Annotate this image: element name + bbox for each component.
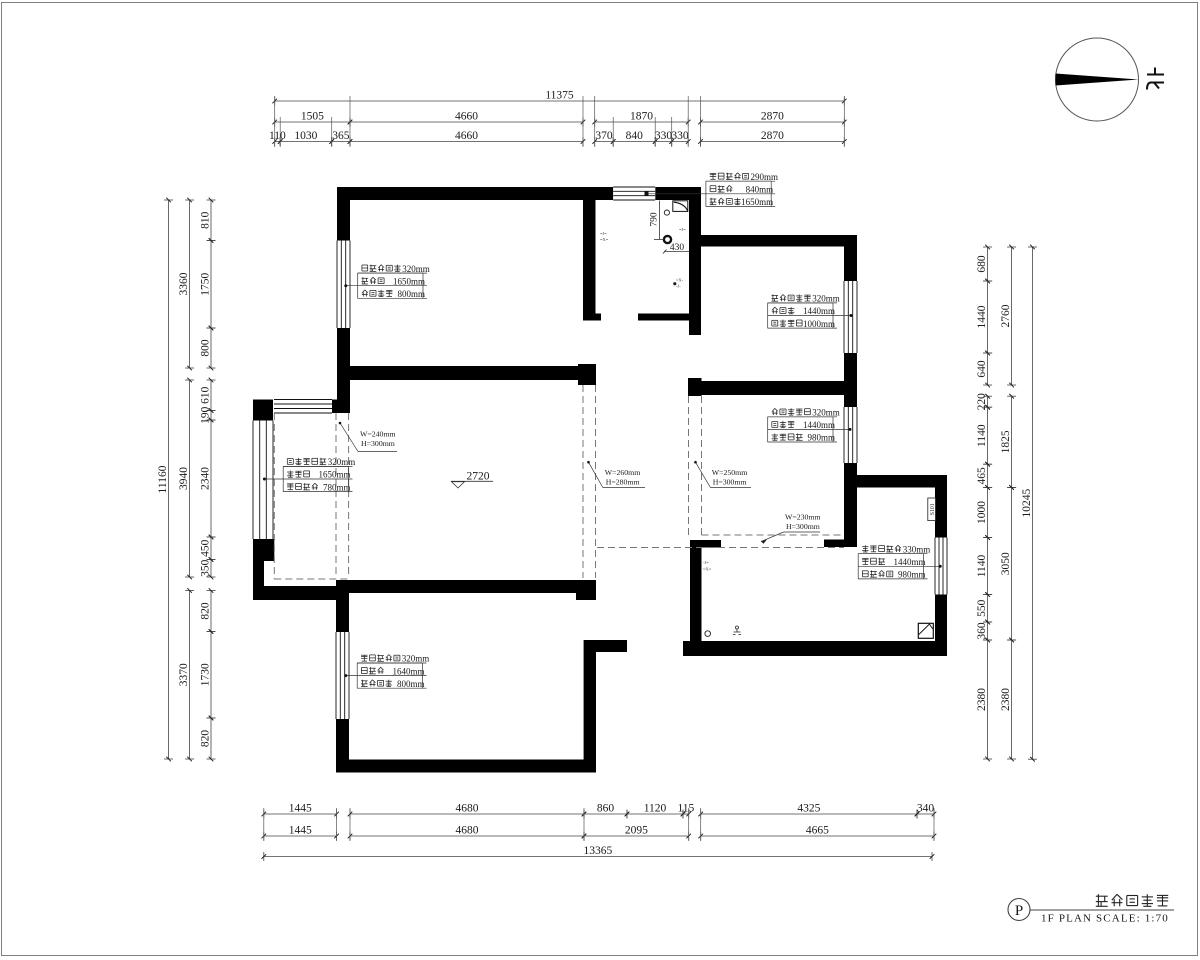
svg-text:320mm: 320mm <box>328 457 356 467</box>
svg-text:W=240mm: W=240mm <box>360 430 396 439</box>
svg-text:W=230mm: W=230mm <box>785 513 821 522</box>
svg-text:W=250mm: W=250mm <box>712 468 748 477</box>
svg-text:780mm: 780mm <box>323 482 351 492</box>
svg-text:115: 115 <box>677 803 694 815</box>
svg-text:=J=: =J= <box>679 227 686 232</box>
svg-text:810: 810 <box>200 211 212 229</box>
svg-text:4660: 4660 <box>455 130 478 142</box>
svg-text:840mm: 840mm <box>746 185 774 195</box>
svg-text:800: 800 <box>200 339 212 357</box>
svg-text:4680: 4680 <box>456 803 479 815</box>
svg-text:4660: 4660 <box>455 111 478 123</box>
svg-text:1445: 1445 <box>289 825 312 837</box>
svg-text:370: 370 <box>595 130 613 142</box>
svg-text:2095: 2095 <box>625 825 648 837</box>
svg-text:4680: 4680 <box>456 825 479 837</box>
svg-text:680: 680 <box>976 255 988 273</box>
svg-text:800mm: 800mm <box>397 679 425 689</box>
svg-text:13365: 13365 <box>584 845 613 857</box>
svg-text:1730: 1730 <box>200 663 212 686</box>
svg-text:1030: 1030 <box>294 130 317 142</box>
svg-text:2870: 2870 <box>761 111 784 123</box>
svg-text:H=300mm: H=300mm <box>361 439 395 448</box>
svg-text:110: 110 <box>269 130 286 142</box>
svg-text:1440mm: 1440mm <box>893 557 925 567</box>
svg-text:1000: 1000 <box>976 501 988 524</box>
svg-text:1440: 1440 <box>976 305 988 328</box>
svg-text:H=280mm: H=280mm <box>606 478 640 487</box>
svg-text:3940: 3940 <box>178 467 190 490</box>
svg-text:365: 365 <box>332 130 350 142</box>
svg-text:320mm: 320mm <box>402 264 430 274</box>
svg-text:790: 790 <box>650 212 660 227</box>
svg-text:1440mm: 1440mm <box>803 420 835 430</box>
svg-text:860: 860 <box>597 803 615 815</box>
svg-text:610: 610 <box>200 386 212 404</box>
svg-text:H=300mm: H=300mm <box>786 522 820 531</box>
svg-text:1F PLAN SCALE: 1:70: 1F PLAN SCALE: 1:70 <box>1041 913 1169 925</box>
svg-text:11160: 11160 <box>157 465 169 493</box>
svg-text:340: 340 <box>917 803 935 815</box>
svg-text:2760: 2760 <box>1000 304 1012 327</box>
svg-text:1505: 1505 <box>301 111 324 123</box>
svg-text:1650mm: 1650mm <box>741 197 773 207</box>
svg-text:2340: 2340 <box>200 467 212 490</box>
svg-text:-J-: -J- <box>676 284 681 289</box>
svg-text:W=260mm: W=260mm <box>605 468 641 477</box>
svg-text:3360: 3360 <box>178 272 190 295</box>
svg-text:=X-: =X- <box>676 278 684 283</box>
svg-text:1440mm: 1440mm <box>803 306 835 316</box>
svg-text:1140: 1140 <box>976 424 988 447</box>
svg-text:190: 190 <box>200 406 212 424</box>
svg-text:=J=: =J= <box>600 231 607 236</box>
svg-text:1825: 1825 <box>1000 430 1012 453</box>
svg-text:1650mm: 1650mm <box>318 470 350 480</box>
svg-text:=X=: =X= <box>703 567 712 572</box>
svg-text:800mm: 800mm <box>397 289 425 299</box>
svg-text:3050: 3050 <box>1000 552 1012 575</box>
svg-text:1120: 1120 <box>644 803 667 815</box>
svg-text:-J=: -J= <box>703 560 709 565</box>
svg-text:450: 450 <box>200 539 212 557</box>
svg-text:320mm: 320mm <box>812 408 840 418</box>
svg-text:330: 330 <box>671 130 689 142</box>
svg-text:1140: 1140 <box>976 554 988 577</box>
svg-text:2380: 2380 <box>976 688 988 711</box>
svg-text:290mm: 290mm <box>751 172 779 182</box>
svg-text:640: 640 <box>976 360 988 378</box>
svg-text:3370: 3370 <box>178 663 190 686</box>
svg-text:320mm: 320mm <box>812 294 840 304</box>
svg-text:330: 330 <box>655 130 673 142</box>
svg-text:S101: S101 <box>930 503 936 515</box>
svg-text:1640mm: 1640mm <box>392 666 424 676</box>
svg-text:550: 550 <box>976 599 988 617</box>
svg-text:980mm: 980mm <box>898 570 926 580</box>
svg-text:4665: 4665 <box>806 825 829 837</box>
svg-text:=X=: =X= <box>600 237 609 242</box>
svg-text:2720: 2720 <box>467 471 490 483</box>
svg-text:465: 465 <box>976 467 988 485</box>
svg-text:4325: 4325 <box>797 803 820 815</box>
svg-text:10245: 10245 <box>1021 488 1033 517</box>
svg-text:820: 820 <box>200 602 212 620</box>
svg-text:11375: 11375 <box>545 90 574 102</box>
svg-text:P: P <box>1015 903 1023 919</box>
svg-text:820: 820 <box>200 730 212 748</box>
svg-text:840: 840 <box>626 130 644 142</box>
svg-text:1750: 1750 <box>200 272 212 295</box>
svg-text:2870: 2870 <box>761 130 784 142</box>
svg-text:350: 350 <box>200 559 212 577</box>
svg-text:1650mm: 1650mm <box>393 276 425 286</box>
svg-text:980mm: 980mm <box>807 433 835 443</box>
svg-text:H=300mm: H=300mm <box>713 478 747 487</box>
svg-text:1870: 1870 <box>630 111 653 123</box>
svg-text:2380: 2380 <box>1000 688 1012 711</box>
svg-text:330mm: 330mm <box>903 544 931 554</box>
svg-text:1445: 1445 <box>289 803 312 815</box>
svg-text:360: 360 <box>976 622 988 640</box>
svg-text:320mm: 320mm <box>402 654 430 664</box>
svg-text:1000mm: 1000mm <box>803 319 835 329</box>
svg-text:220: 220 <box>976 393 988 411</box>
